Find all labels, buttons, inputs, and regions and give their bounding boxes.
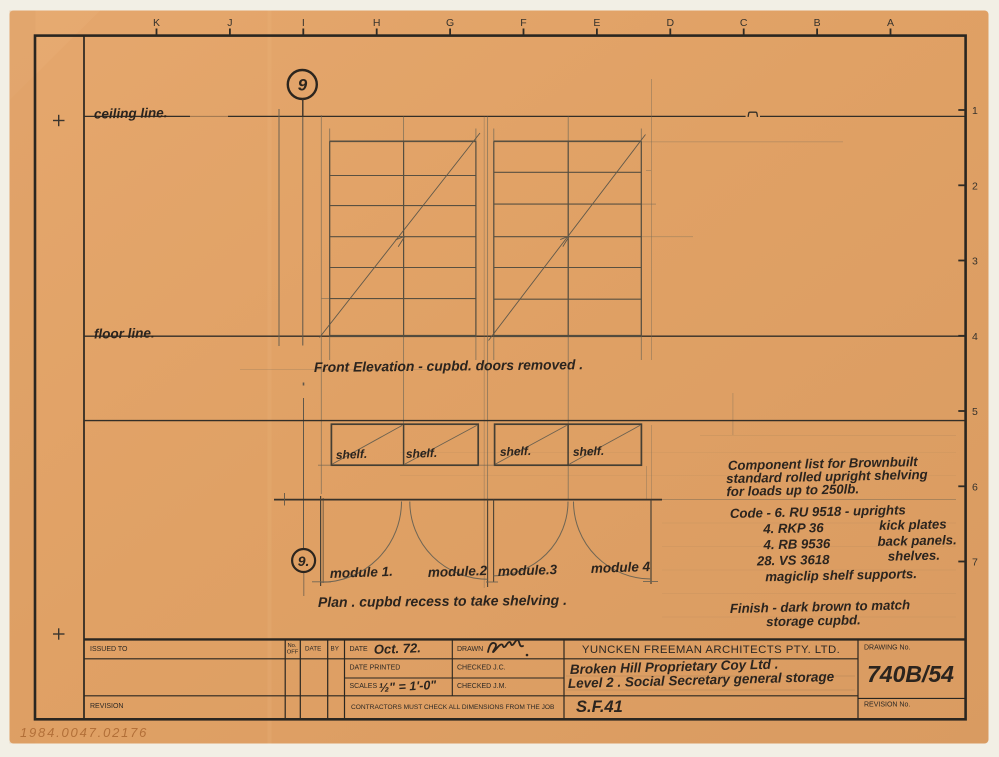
svg-text:C: C bbox=[740, 17, 748, 29]
svg-text:4: 4 bbox=[972, 331, 978, 343]
svg-text:4. RKP 36: 4. RKP 36 bbox=[762, 520, 824, 536]
svg-text:740B/54: 740B/54 bbox=[867, 661, 954, 687]
svg-text:BY: BY bbox=[331, 646, 340, 653]
svg-text:SCALES: SCALES bbox=[350, 683, 378, 690]
svg-text:Front Elevation - cupbd. doors: Front Elevation - cupbd. doors removed . bbox=[314, 357, 583, 375]
svg-text:3: 3 bbox=[972, 256, 978, 268]
svg-text:I: I bbox=[302, 17, 305, 29]
svg-text:shelf.: shelf. bbox=[336, 447, 368, 462]
svg-text:B: B bbox=[814, 17, 821, 29]
svg-text:module 4: module 4 bbox=[591, 559, 651, 576]
svg-text:OFF: OFF bbox=[287, 650, 299, 656]
svg-text:G: G bbox=[446, 17, 454, 29]
svg-text:module 1.: module 1. bbox=[330, 564, 394, 581]
svg-text:YUNCKEN FREEMAN ARCHITECTS PTY: YUNCKEN FREEMAN ARCHITECTS PTY. LTD. bbox=[582, 644, 840, 656]
svg-text:CONTRACTORS MUST CHECK ALL DIM: CONTRACTORS MUST CHECK ALL DIMENSIONS FR… bbox=[351, 704, 555, 711]
svg-text:REVISION No.: REVISION No. bbox=[864, 702, 910, 709]
svg-text:9.: 9. bbox=[298, 553, 310, 569]
svg-text:back panels.: back panels. bbox=[877, 532, 956, 549]
svg-text:S.F.41: S.F.41 bbox=[576, 698, 623, 716]
svg-text:28. VS 3618: 28. VS 3618 bbox=[756, 552, 831, 569]
svg-text:kick plates: kick plates bbox=[879, 516, 947, 532]
svg-text:5: 5 bbox=[972, 406, 978, 418]
svg-text:floor line.: floor line. bbox=[94, 325, 155, 341]
svg-text:shelf.: shelf. bbox=[573, 444, 605, 459]
svg-text:Oct. 72.: Oct. 72. bbox=[374, 640, 421, 657]
svg-text:2: 2 bbox=[972, 180, 978, 192]
svg-text:for loads up to 250lb.: for loads up to 250lb. bbox=[726, 481, 859, 499]
svg-text:ceiling line.: ceiling line. bbox=[94, 105, 168, 121]
svg-text:shelves.: shelves. bbox=[888, 548, 940, 564]
svg-text:DRAWING No.: DRAWING No. bbox=[864, 645, 910, 652]
svg-text:DRAWN: DRAWN bbox=[457, 646, 483, 653]
svg-text:shelf.: shelf. bbox=[406, 446, 438, 461]
svg-text:No.: No. bbox=[288, 643, 297, 649]
svg-text:ISSUED TO: ISSUED TO bbox=[90, 646, 128, 653]
svg-text:K: K bbox=[153, 17, 160, 29]
svg-text:DATE: DATE bbox=[350, 646, 368, 653]
svg-text:1984.0047.02176: 1984.0047.02176 bbox=[20, 725, 148, 740]
svg-text:6: 6 bbox=[972, 481, 978, 493]
svg-text:Plan . cupbd recess to take sh: Plan . cupbd recess to take shelving . bbox=[318, 592, 567, 610]
svg-text:magiclip shelf supports.: magiclip shelf supports. bbox=[765, 566, 917, 584]
svg-text:J: J bbox=[227, 17, 232, 29]
svg-text:9: 9 bbox=[298, 76, 308, 95]
svg-text:H: H bbox=[373, 17, 381, 29]
svg-text:1: 1 bbox=[972, 105, 978, 117]
svg-text:REVISION: REVISION bbox=[90, 703, 123, 710]
svg-text:CHECKED J.C.: CHECKED J.C. bbox=[457, 665, 506, 672]
svg-text:module.2: module.2 bbox=[428, 563, 488, 580]
svg-text:D: D bbox=[667, 17, 675, 29]
svg-text:CHECKED J.M.: CHECKED J.M. bbox=[457, 683, 506, 690]
svg-text:A: A bbox=[887, 17, 894, 29]
svg-text:module.3: module.3 bbox=[498, 562, 558, 579]
svg-text:4. RB 9536: 4. RB 9536 bbox=[762, 536, 831, 552]
svg-text:DATE PRINTED: DATE PRINTED bbox=[350, 665, 401, 672]
svg-text:E: E bbox=[593, 17, 600, 29]
svg-text:7: 7 bbox=[972, 557, 978, 569]
svg-text:F: F bbox=[520, 17, 526, 29]
svg-text:shelf.: shelf. bbox=[500, 444, 532, 459]
svg-text:storage cupbd.: storage cupbd. bbox=[766, 612, 861, 629]
svg-text:DATE: DATE bbox=[305, 646, 321, 653]
